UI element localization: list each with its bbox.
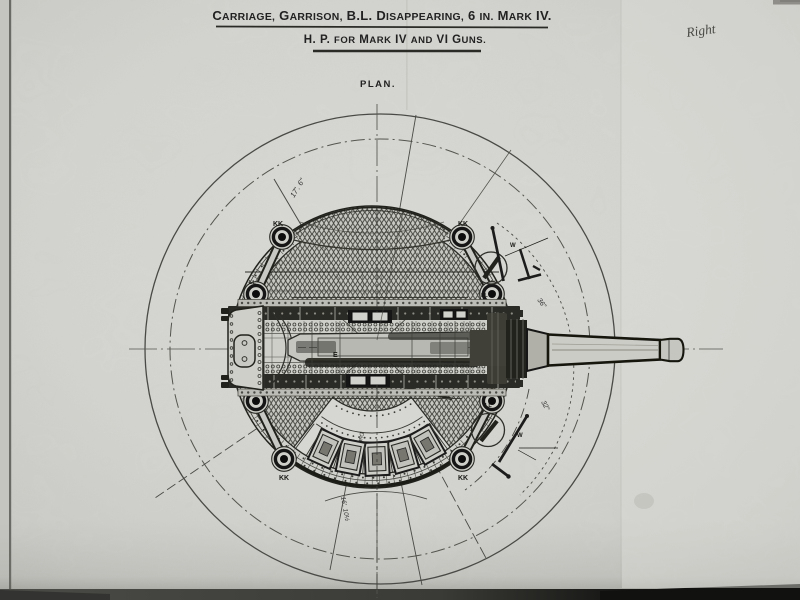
svg-text:W: W: [517, 433, 523, 439]
svg-text:KK: KK: [273, 221, 283, 228]
svg-text:KK: KK: [458, 221, 468, 228]
svg-text:E: E: [333, 352, 338, 359]
svg-text:LL: LL: [249, 280, 256, 286]
svg-text:KK: KK: [458, 475, 468, 482]
svg-text:W: W: [510, 243, 516, 249]
svg-text:LL: LL: [485, 403, 492, 409]
svg-text:KK: KK: [279, 475, 289, 482]
svg-text:LL: LL: [481, 293, 488, 299]
svg-text:PLAN.: PLAN.: [360, 79, 396, 90]
svg-text:H. P. FOR MARK IV AND VI GUNS.: H. P. FOR MARK IV AND VI GUNS.: [304, 34, 486, 46]
